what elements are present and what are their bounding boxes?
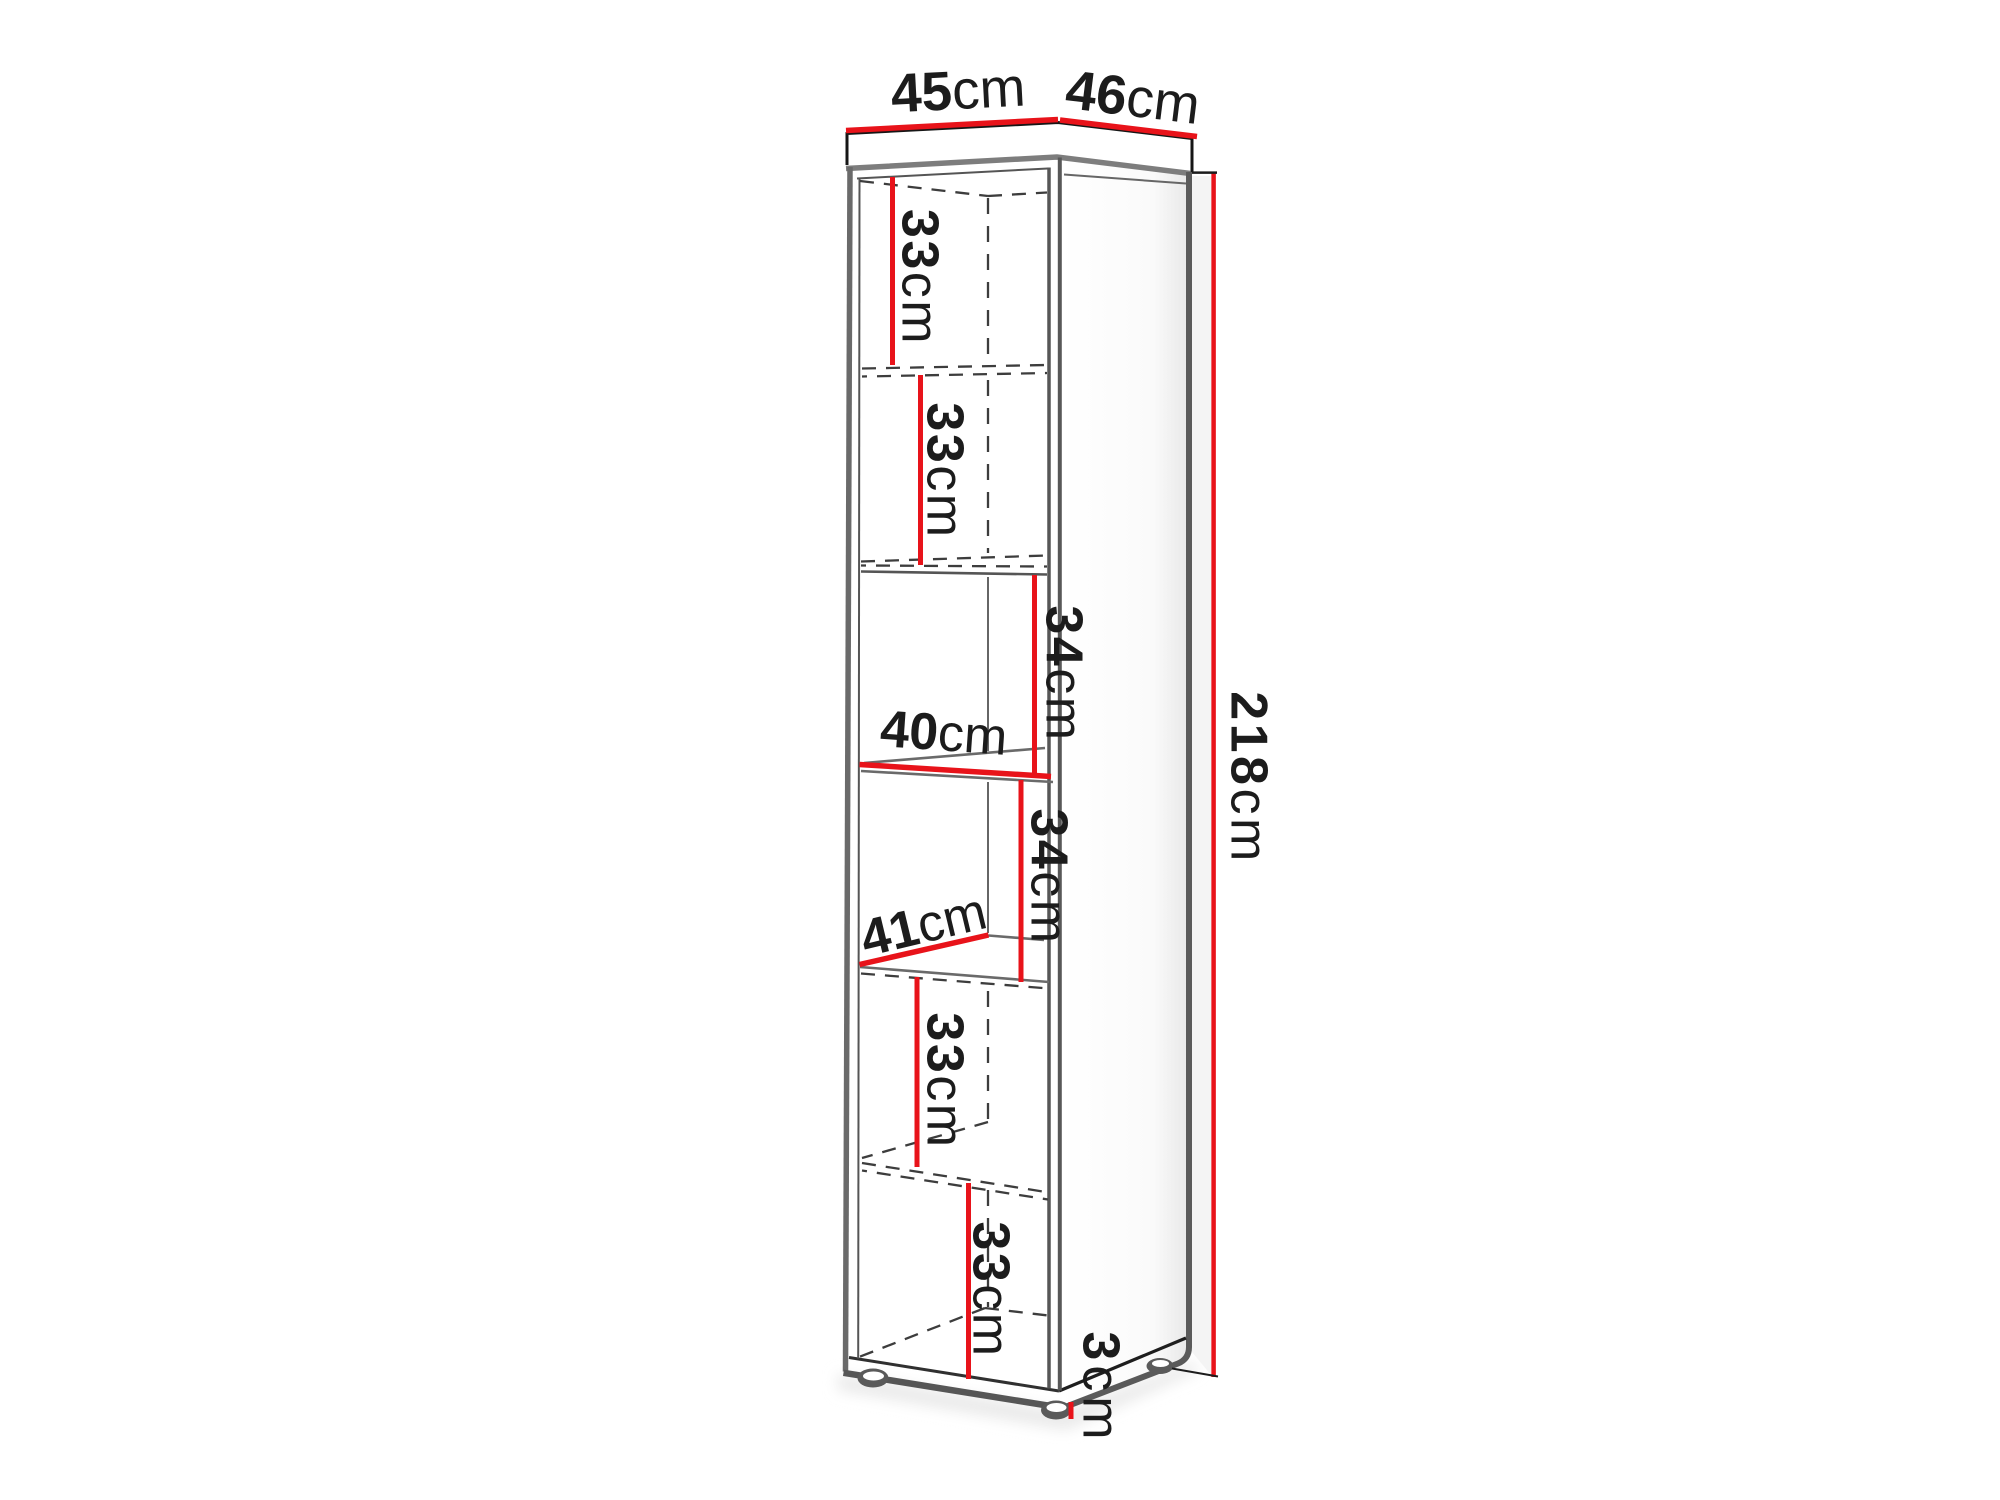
- svg-text:3cm: 3cm: [1072, 1331, 1130, 1444]
- svg-text:33cm: 33cm: [962, 1221, 1020, 1358]
- svg-text:218cm: 218cm: [1220, 691, 1278, 865]
- svg-text:33cm: 33cm: [916, 402, 974, 539]
- svg-text:33cm: 33cm: [916, 1012, 974, 1149]
- svg-text:40cm: 40cm: [878, 700, 1009, 767]
- svg-text:34cm: 34cm: [1020, 808, 1078, 945]
- svg-text:33cm: 33cm: [891, 209, 949, 346]
- svg-text:34cm: 34cm: [1035, 605, 1093, 742]
- svg-text:45cm: 45cm: [889, 56, 1027, 125]
